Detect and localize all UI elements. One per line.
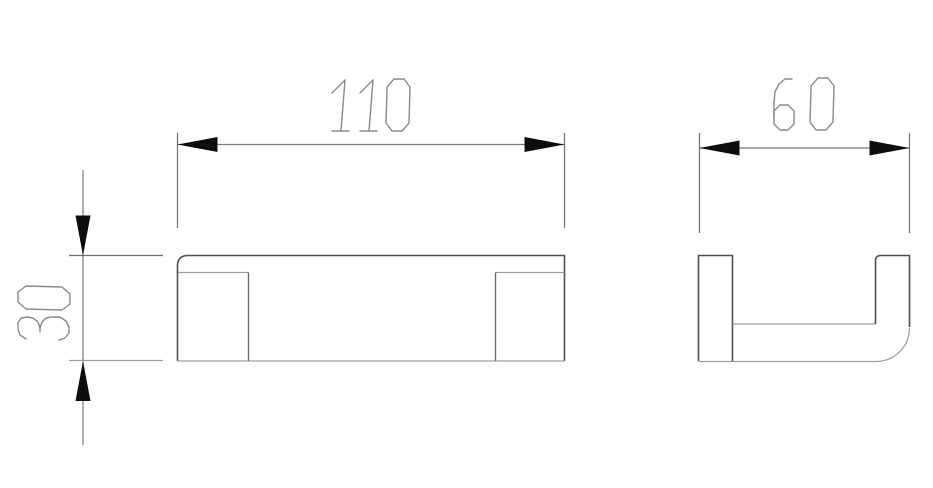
dim-digit-stroke [360, 80, 373, 93]
dim-digit-stroke [40, 317, 69, 340]
dim-width-label [332, 79, 410, 131]
dim-depth-arrow-right [870, 141, 910, 156]
dim-digit-stroke [386, 79, 410, 131]
dim-digit-stroke [774, 105, 794, 130]
bottom-edge-and-curve [699, 328, 910, 362]
side-view [699, 256, 910, 362]
dim-digit-stroke [341, 80, 345, 131]
dim-digit-stroke [332, 80, 345, 93]
dim-width [178, 79, 565, 228]
dim-height-arrow-bottom [76, 361, 91, 401]
dim-depth-label [774, 78, 834, 130]
dim-depth-arrow-left [700, 141, 740, 156]
front-view [178, 256, 565, 362]
technical-drawing [0, 0, 933, 488]
front-view-outline [178, 256, 565, 362]
drawing-canvas [0, 0, 933, 488]
dim-width-arrow-right [525, 137, 565, 152]
dim-height [18, 170, 163, 445]
front-bar-profile [876, 256, 910, 328]
dim-digit-stroke [774, 79, 792, 118]
dim-digit-stroke [810, 78, 834, 130]
dim-digit-stroke [18, 286, 70, 310]
wall-plate-outline [699, 256, 733, 362]
dim-height-arrow-top [76, 216, 91, 256]
dim-digit-stroke [18, 317, 40, 339]
dim-height-label [18, 286, 70, 340]
dim-depth [700, 78, 910, 233]
dim-width-arrow-left [178, 137, 218, 152]
dim-digit-stroke [369, 80, 373, 131]
